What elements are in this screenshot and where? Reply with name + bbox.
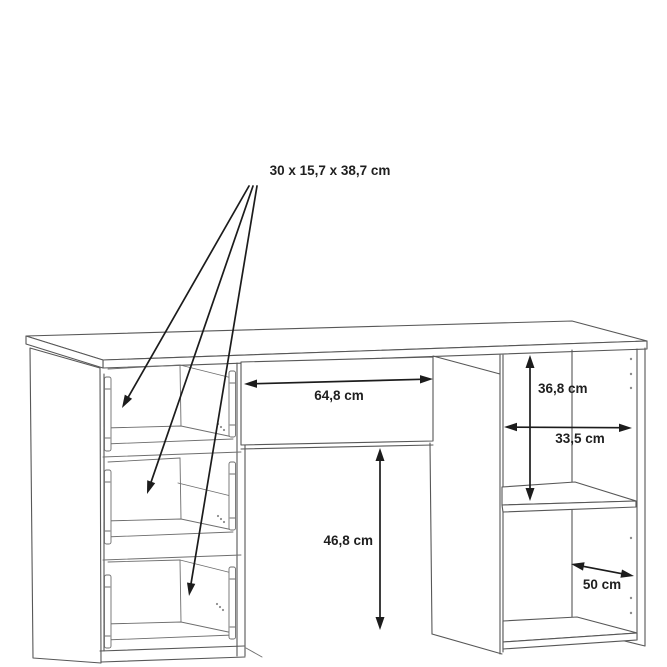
dim-depth: 50 cm — [571, 562, 634, 592]
drawer-2 — [104, 458, 233, 537]
drawer-3 — [104, 560, 233, 640]
kneehole-height-label: 46,8 cm — [323, 533, 373, 548]
drawer-slide-rails — [105, 371, 236, 648]
middle-panel — [241, 357, 433, 449]
bottom-shelf — [503, 617, 637, 649]
left-pedestal — [30, 348, 262, 663]
left-side-panel — [30, 348, 101, 663]
desk-drawing — [26, 321, 647, 663]
drawer-size-label: 30 x 15,7 x 38,7 cm — [270, 163, 391, 178]
diagram-canvas: 30 x 15,7 x 38,7 cm 64,8 cm 36,8 cm — [0, 0, 667, 667]
desk-dimension-diagram: 30 x 15,7 x 38,7 cm 64,8 cm 36,8 cm — [0, 0, 667, 667]
dim-compartment-width: 33,5 cm — [504, 423, 632, 446]
compartment-width-label: 33,5 cm — [555, 431, 605, 446]
screw-hole-dots — [216, 423, 225, 611]
kneehole-width-label: 64,8 cm — [314, 388, 364, 403]
compartment-height-label: 36,8 cm — [538, 381, 588, 396]
depth-label: 50 cm — [583, 577, 621, 592]
dim-kneehole-height: 46,8 cm — [323, 448, 384, 630]
middle-shelf — [502, 482, 636, 512]
